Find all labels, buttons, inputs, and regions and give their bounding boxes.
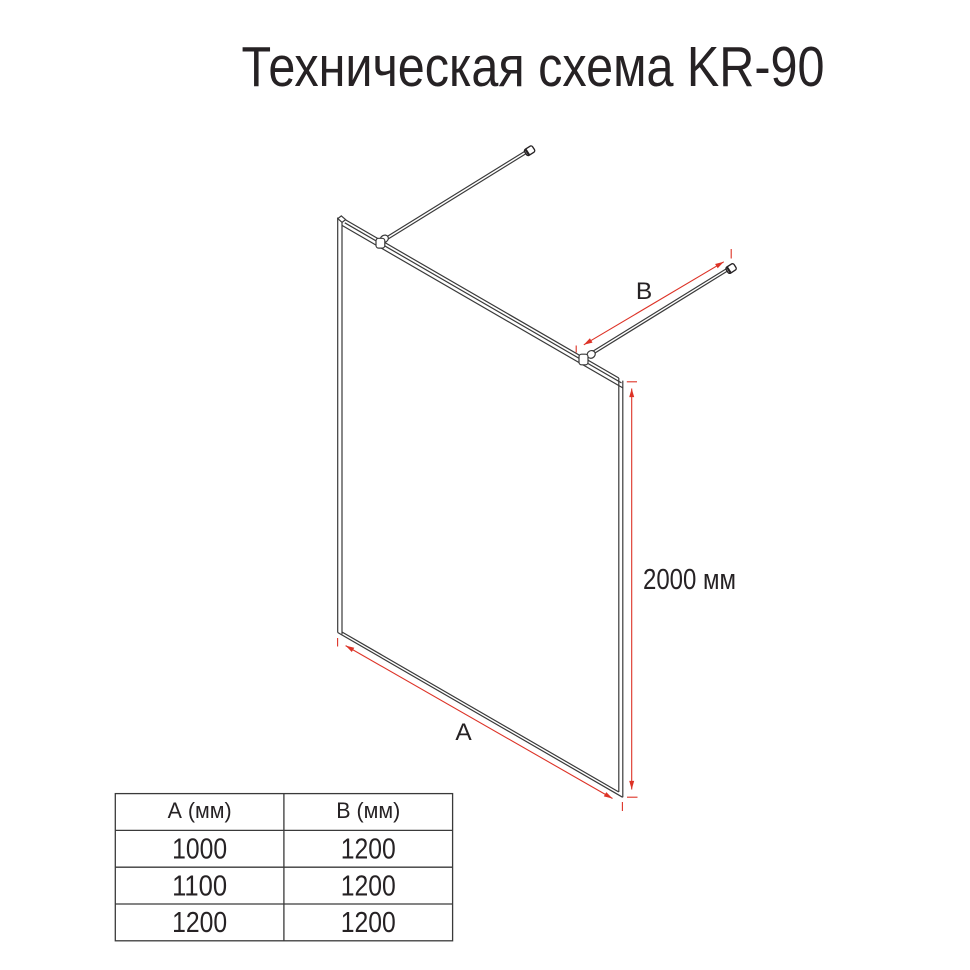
svg-text:2000 мм: 2000 мм — [643, 564, 736, 596]
svg-text:1200: 1200 — [341, 834, 396, 866]
svg-text:1200: 1200 — [341, 907, 396, 939]
svg-text:А (мм): А (мм) — [168, 798, 232, 823]
svg-text:Техническая схема KR-90: Техническая схема KR-90 — [242, 35, 825, 99]
svg-text:1000: 1000 — [172, 834, 227, 866]
svg-text:A: A — [455, 719, 472, 746]
svg-text:B: B — [636, 278, 652, 305]
svg-text:1200: 1200 — [341, 870, 396, 902]
svg-text:1200: 1200 — [172, 907, 227, 939]
svg-text:В (мм): В (мм) — [336, 798, 400, 823]
svg-text:1100: 1100 — [172, 870, 227, 902]
